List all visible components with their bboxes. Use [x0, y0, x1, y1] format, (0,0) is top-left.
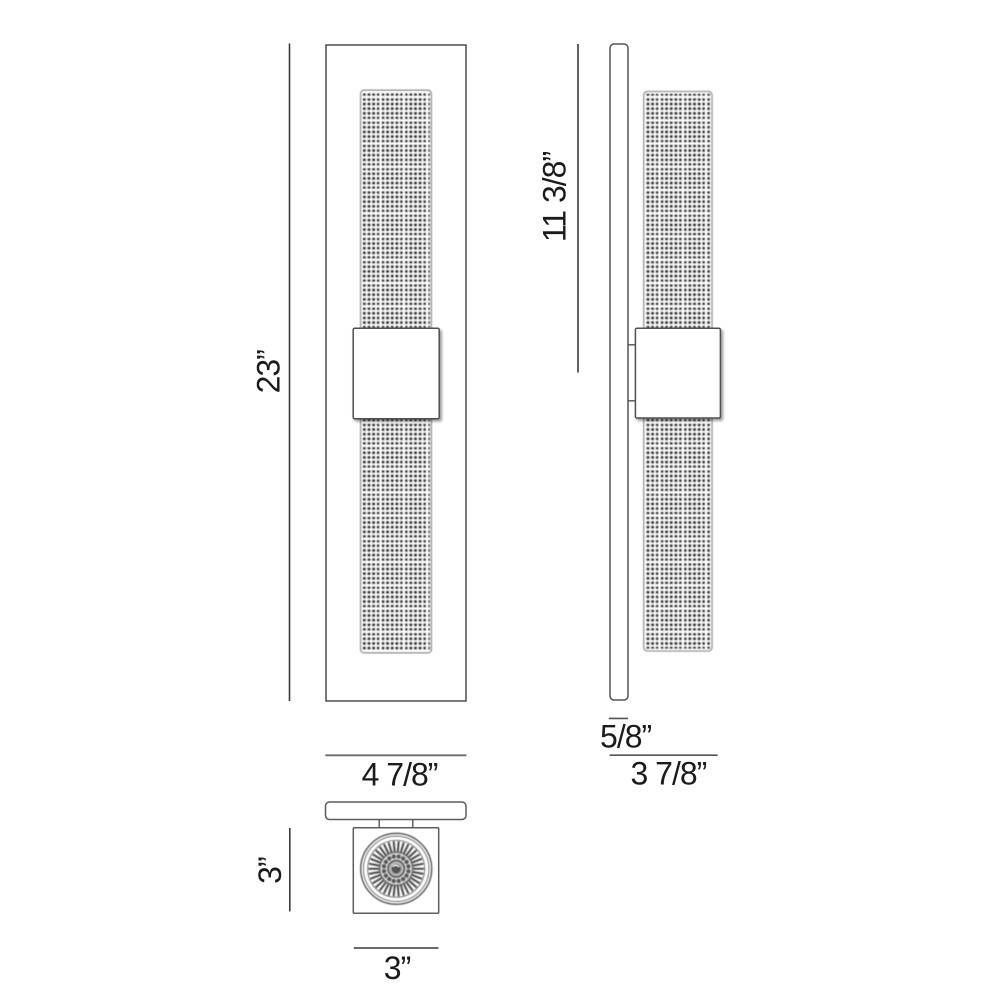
svg-text:5/8”: 5/8” — [600, 719, 651, 755]
svg-text:3”: 3” — [384, 950, 411, 986]
svg-text:3 7/8”: 3 7/8” — [630, 755, 706, 791]
svg-text:3”: 3” — [252, 857, 288, 884]
svg-text:23”: 23” — [251, 350, 287, 394]
svg-text:11 3/8”: 11 3/8” — [536, 152, 572, 243]
svg-text:4 7/8”: 4 7/8” — [362, 757, 438, 793]
